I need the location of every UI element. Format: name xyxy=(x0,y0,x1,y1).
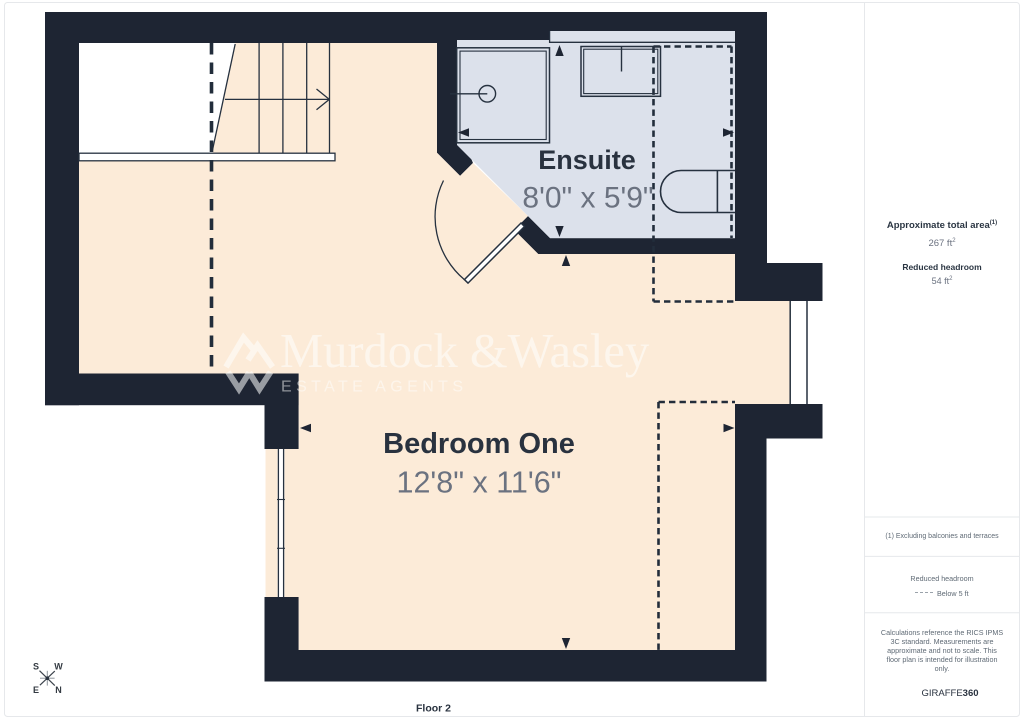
svg-text:ESTATE AGENTS: ESTATE AGENTS xyxy=(281,379,467,396)
svg-text:E: E xyxy=(33,685,39,695)
svg-text:12'8" x 11'6": 12'8" x 11'6" xyxy=(396,466,561,500)
svg-text:Floor 2: Floor 2 xyxy=(416,703,451,715)
svg-text:W: W xyxy=(54,662,63,672)
svg-text:8'0" x 5'9": 8'0" x 5'9" xyxy=(522,182,653,215)
svg-text:Ensuite: Ensuite xyxy=(538,145,636,175)
svg-text:N: N xyxy=(55,685,62,695)
svg-text:S: S xyxy=(33,662,39,672)
svg-text:Murdock &Wasley: Murdock &Wasley xyxy=(280,325,650,378)
svg-text:Bedroom One: Bedroom One xyxy=(383,428,575,460)
